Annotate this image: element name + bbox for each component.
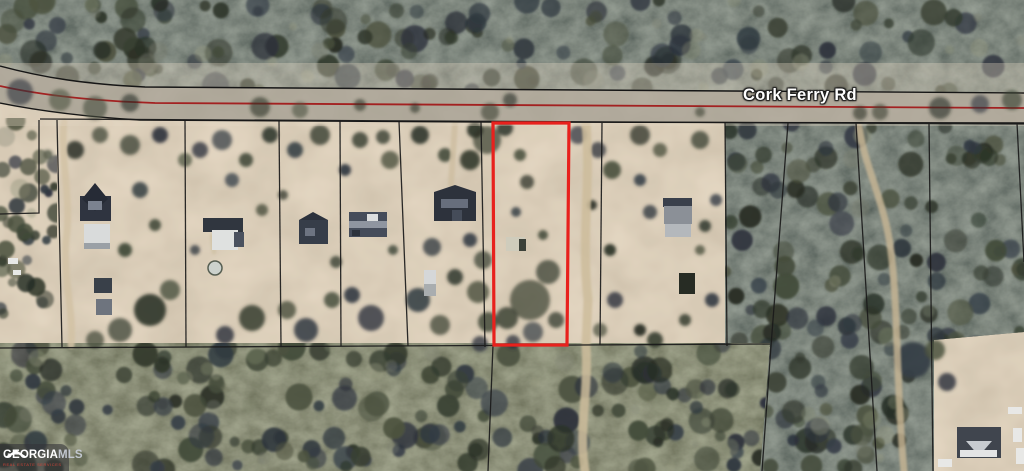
aerial-parcel-map[interactable]: Cork Ferry Rd GEORGIAMLS REAL ESTATE SER… (0, 0, 1024, 471)
shed-1 (94, 278, 112, 293)
watermark-suffix-text: MLS (58, 449, 83, 461)
house-4 (349, 212, 387, 237)
shed-2 (96, 299, 112, 315)
road-name-label: Cork Ferry Rd (743, 86, 857, 105)
aerial-imagery (0, 0, 1024, 471)
watermark-tagline: REAL ESTATE SERVICES (3, 462, 69, 467)
house-7 (957, 427, 1001, 458)
shed-3 (679, 273, 695, 294)
mls-watermark: GEORGIAMLS REAL ESTATE SERVICES (0, 444, 69, 471)
outbuilding-1 (84, 224, 110, 249)
outbuilding-2 (424, 270, 436, 296)
pool (208, 261, 222, 275)
forest-region-bottom (0, 333, 776, 471)
house-5 (434, 185, 476, 221)
shed-subject-parcel (506, 237, 526, 251)
house-6 (663, 198, 692, 237)
roof-icon (3, 449, 29, 458)
